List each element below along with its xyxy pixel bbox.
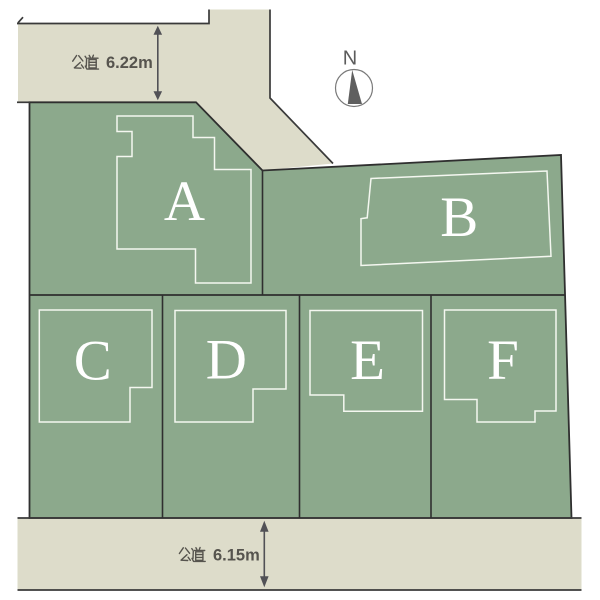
svg-text:F: F: [487, 329, 519, 392]
svg-text:6.15m: 6.15m: [213, 547, 260, 565]
svg-text:C: C: [74, 330, 112, 393]
svg-text:N: N: [343, 48, 357, 70]
svg-text:E: E: [350, 329, 385, 392]
svg-text:A: A: [164, 170, 205, 233]
svg-text:6.22m: 6.22m: [106, 54, 153, 72]
svg-text:D: D: [206, 329, 247, 392]
svg-text:B: B: [440, 186, 478, 249]
